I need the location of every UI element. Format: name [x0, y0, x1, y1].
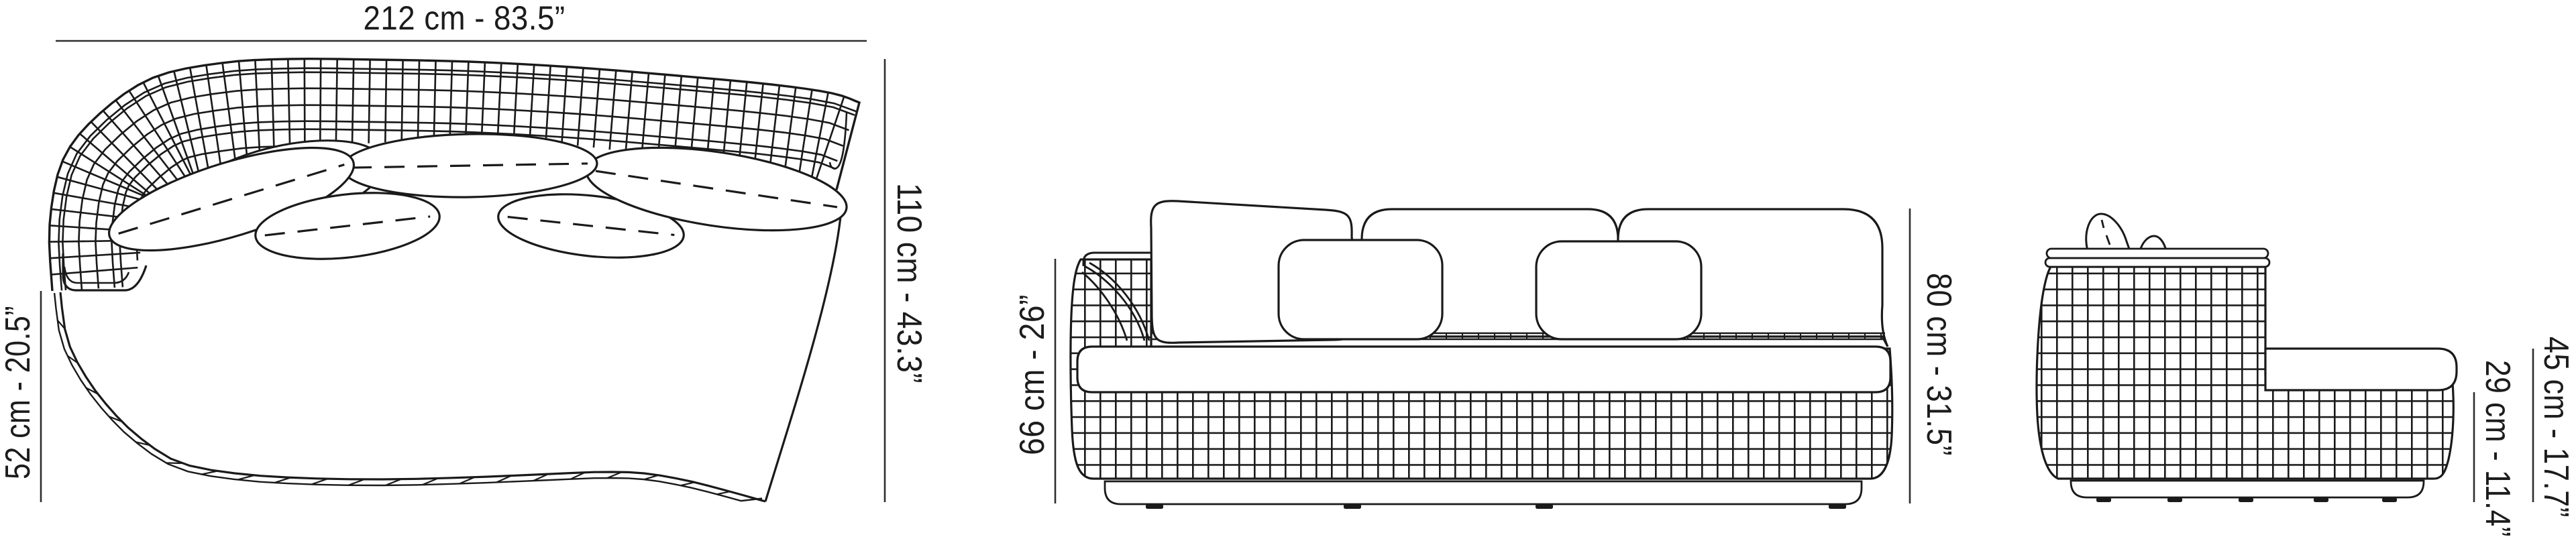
svg-text:45 cm - 17.7”: 45 cm - 17.7”: [2536, 337, 2575, 518]
svg-text:29 cm - 11.4”: 29 cm - 11.4”: [2478, 360, 2517, 537]
svg-text:110 cm - 43.3”: 110 cm - 43.3”: [890, 183, 928, 383]
svg-text:80 cm - 31.5”: 80 cm - 31.5”: [1919, 273, 1958, 456]
svg-text:52 cm - 20.5”: 52 cm - 20.5”: [0, 306, 38, 479]
svg-text:66 cm - 26”: 66 cm - 26”: [1013, 294, 1052, 455]
svg-text:212 cm - 83.5”: 212 cm - 83.5”: [364, 0, 566, 37]
